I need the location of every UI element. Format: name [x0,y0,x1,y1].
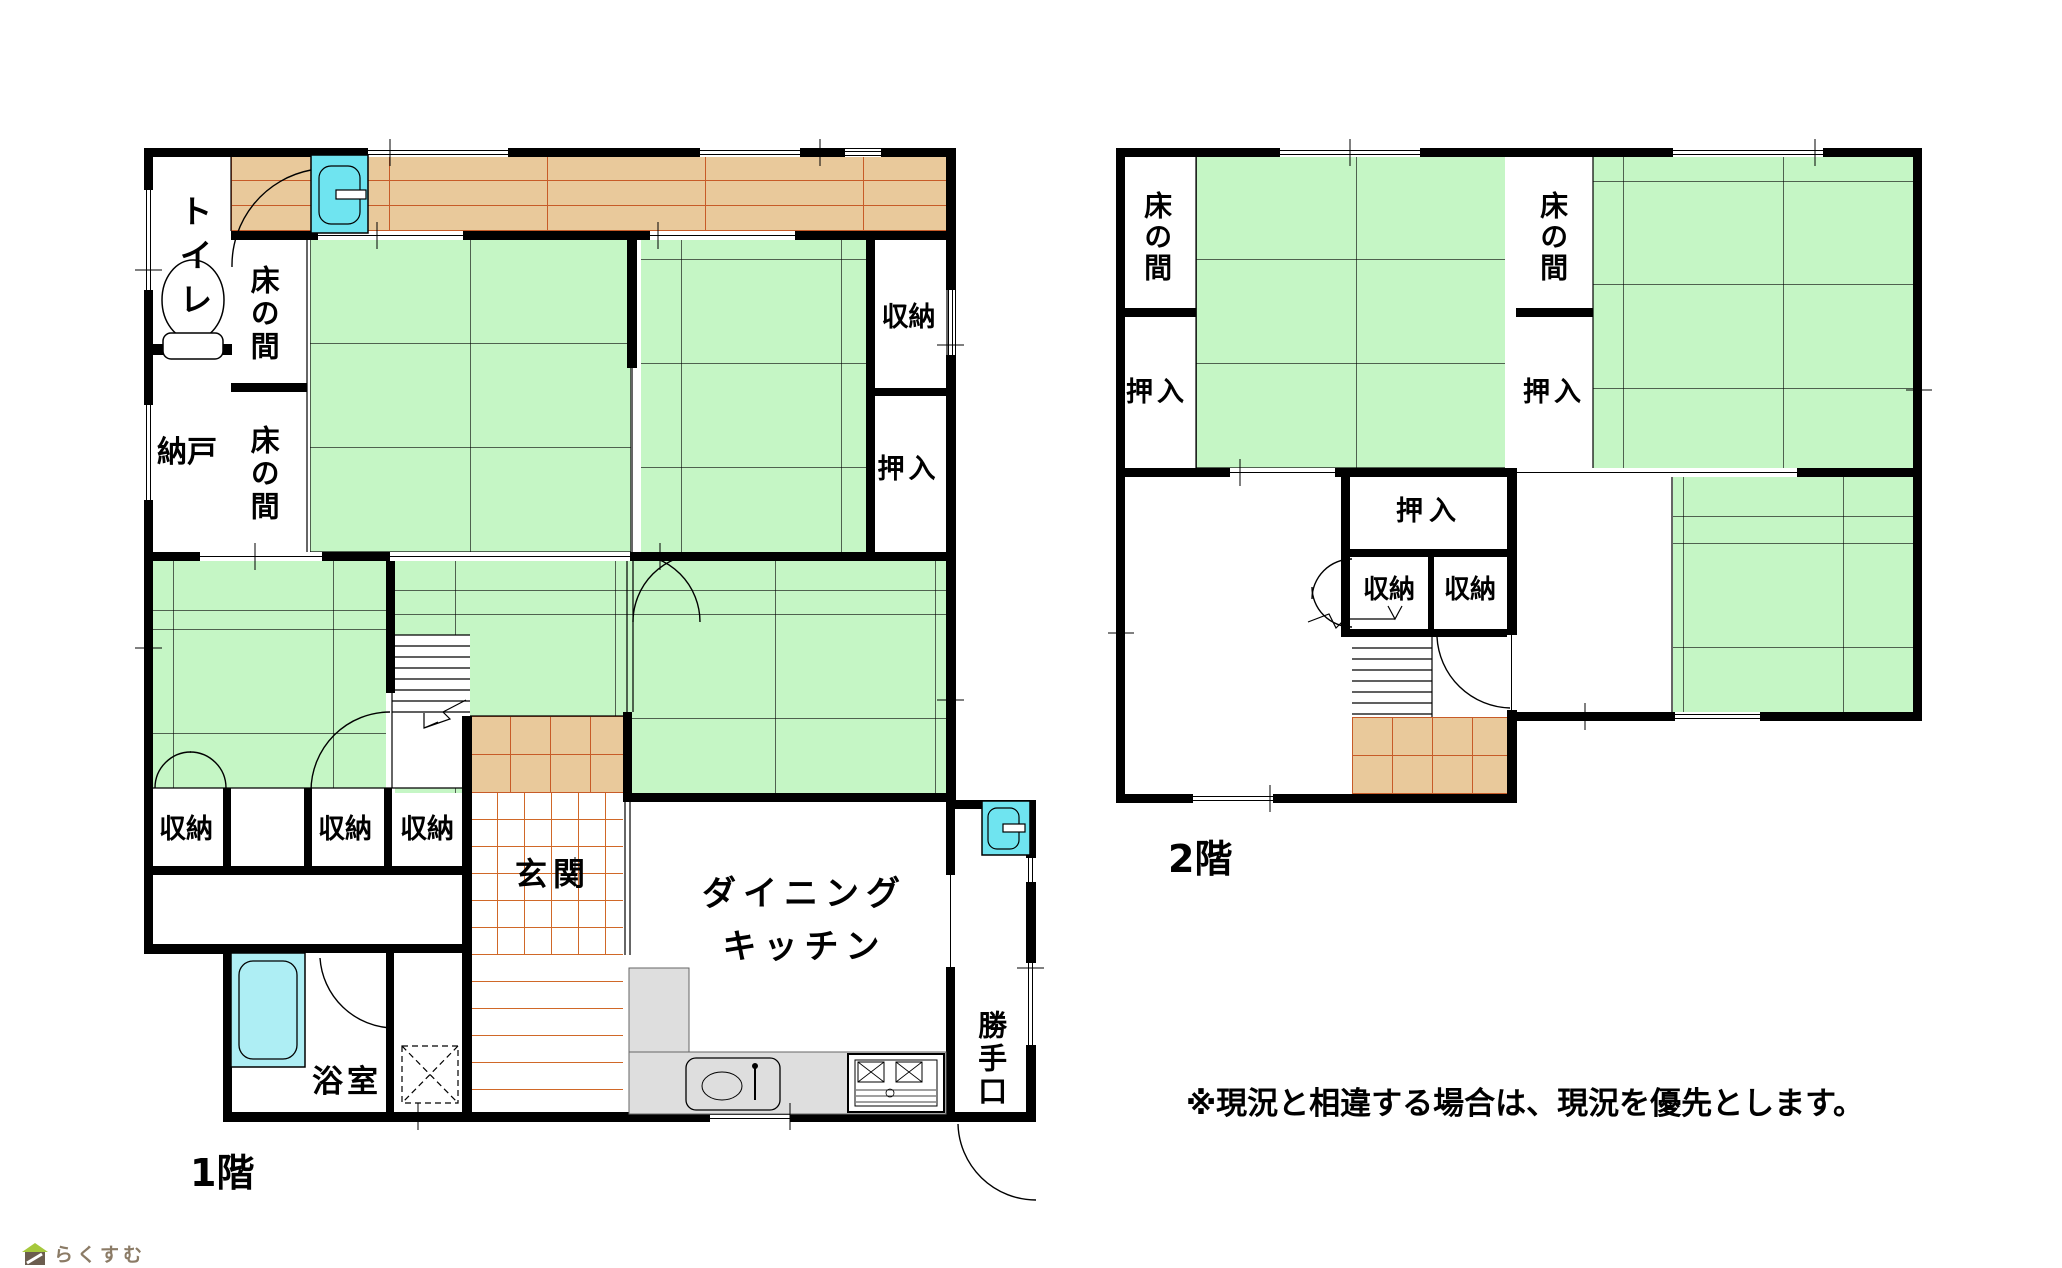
window-marker [1675,712,1760,721]
wall [144,866,470,875]
wall [144,148,956,157]
room-label-f2-oshiire-center: 押入 [1389,494,1469,530]
room-label-closet-right: 収納 [871,300,946,336]
room-label-f2-tokonoma-left: 床の間 [1134,163,1178,311]
wall [462,716,472,1122]
wall [1026,800,1036,1122]
f1-corridor-wood-floor [231,157,946,231]
f2-tatami-room-a [1196,157,1505,468]
door-opening [1507,635,1517,710]
room-label-kitchen-door: 勝手口 [967,993,1013,1125]
room-label-closet-left: 収納 [148,812,224,848]
wall [386,561,395,693]
wall [866,388,946,396]
wall [627,793,946,802]
window-marker [1026,858,1036,882]
floorplan-canvas: トイレ 床の間 床の間 納戸 収納 押入 収納 収納 収納 玄関 ダイニング キ… [0,0,2062,1268]
floor2-name: 2階 [1168,828,1232,883]
room-label-f2-closet-b: 収納 [1432,573,1508,609]
window-marker [368,148,508,157]
sliding-door-opening [390,552,630,561]
room-label-tokonoma-upper: 床の間 [240,248,285,380]
laundry-pan-icon [402,1046,458,1103]
f1-stairwell [391,635,470,788]
bathtub-icon [231,953,305,1067]
wall [223,944,470,953]
site-logo-text: らくすむ [54,1240,146,1267]
room-label-genkan: 玄関 [493,855,613,893]
window-marker [1193,794,1273,803]
f1-tatami-room-b [641,240,866,552]
window-marker [1026,963,1036,1045]
stove-icon [848,1054,944,1112]
wall [1116,794,1516,803]
house-logo-icon [22,1243,48,1265]
wall [1797,468,1917,477]
wall [946,800,1036,809]
sliding-door-opening [200,552,322,561]
sliding-door-opening [650,231,795,240]
window-marker [710,1112,790,1122]
kitchen-counter-icon [629,968,946,1114]
wall [223,788,231,872]
room-label-closet-mid: 収納 [306,812,384,848]
window-marker [700,148,800,157]
window-marker [144,190,153,290]
f2-tatami-room-c [1673,477,1913,712]
room-label-dining-kitchen: ダイニング キッチン [662,862,947,980]
wall [231,383,307,392]
site-logo: らくすむ [22,1240,146,1267]
disclaimer-note: ※現況と相違する場合は、現況を優先とします。 [1186,1078,1864,1123]
room-label-closet-mid2: 収納 [390,812,464,848]
room-label-f2-closet-a: 収納 [1350,573,1428,609]
room-label-oshiire-right: 押入 [871,452,946,488]
window-marker [1280,148,1420,157]
floor1-name: 1階 [190,1142,254,1197]
wall [1341,629,1508,637]
wall [946,148,956,809]
wall [223,944,232,1122]
wall [144,944,232,954]
room-label-toilet: トイレ [170,162,216,357]
f1-tatami-room-a [310,240,631,552]
wall [623,712,632,802]
window-marker [946,290,955,355]
room-label-tokonoma-lower: 床の間 [240,400,285,548]
wall [627,233,637,368]
f2-stairs [1308,606,1432,714]
sliding-door-opening [318,231,463,240]
window-marker [1673,148,1823,157]
dining-kitchen-line2: キッチン [723,928,887,967]
sliding-door-opening [1230,468,1335,477]
window-marker [845,149,881,157]
sliding-door-opening [1517,468,1797,477]
f1-genkan-wood-strip [470,716,623,793]
wall [1341,549,1508,557]
room-label-f2-oshiire-mid: 押入 [1514,375,1594,411]
room-label-bath: 浴室 [287,1064,407,1102]
kitchen-door-sink-icon [982,801,1030,855]
dining-kitchen-line1: ダイニング [702,875,907,914]
room-label-nando: 納戸 [146,434,228,472]
wall [866,231,875,561]
room-label-f2-oshiire-left: 押入 [1118,375,1196,411]
f1-tatami-room-c [153,561,386,788]
room-label-f2-tokonoma-mid: 床の間 [1530,163,1574,311]
f1-genkan-steps [470,955,623,1090]
door-opening [946,875,955,967]
f2-hall-wood-floor [1352,717,1507,794]
wall [223,1112,1036,1122]
f2-tatami-room-b [1593,157,1913,468]
wall [1913,148,1922,721]
